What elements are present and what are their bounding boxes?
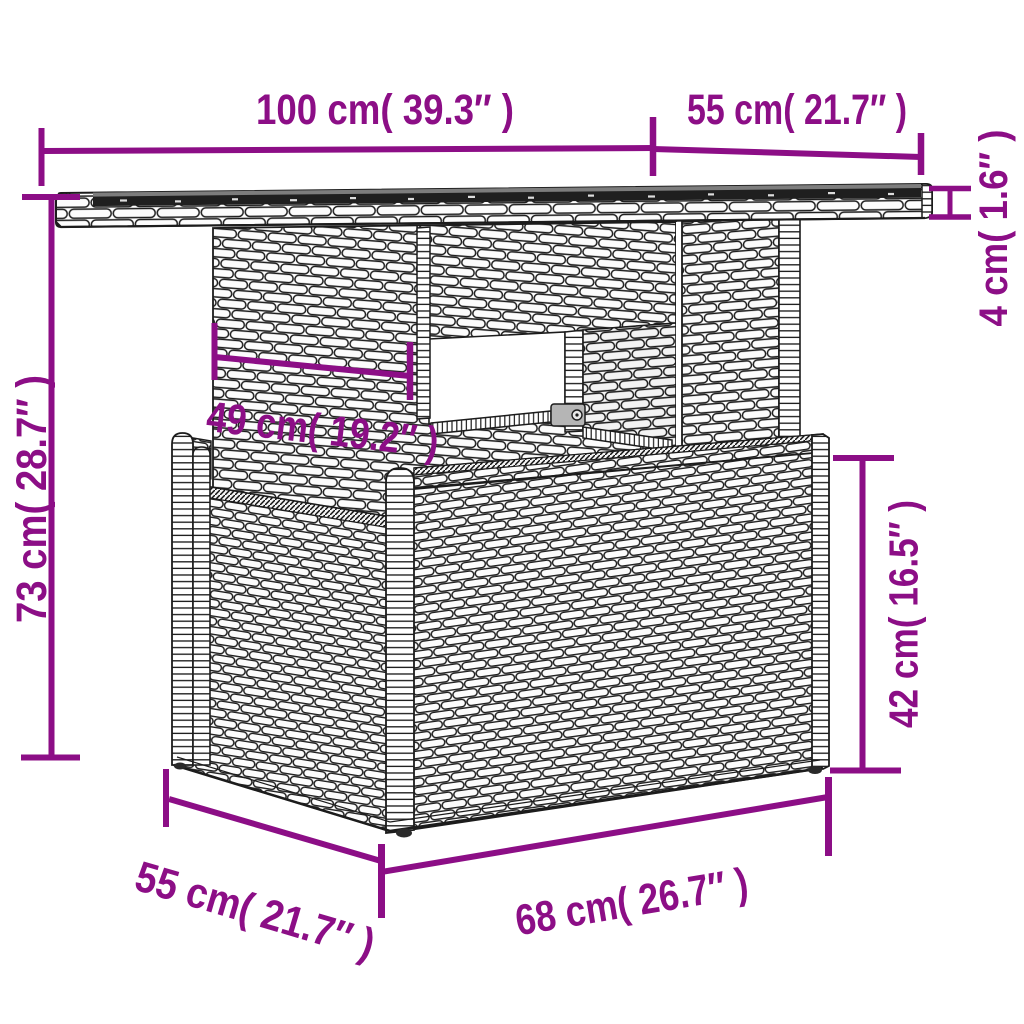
svg-text:73 cm( 28.7″ ): 73 cm( 28.7″ ) (8, 375, 56, 623)
svg-text:55 cm( 21.7″ ): 55 cm( 21.7″ ) (687, 86, 907, 134)
svg-text:100 cm( 39.3″ ): 100 cm( 39.3″ ) (256, 86, 514, 134)
svg-text:42 cm( 16.5″ ): 42 cm( 16.5″ ) (881, 500, 927, 728)
svg-text:4 cm( 1.6″ ): 4 cm( 1.6″ ) (972, 130, 1016, 327)
